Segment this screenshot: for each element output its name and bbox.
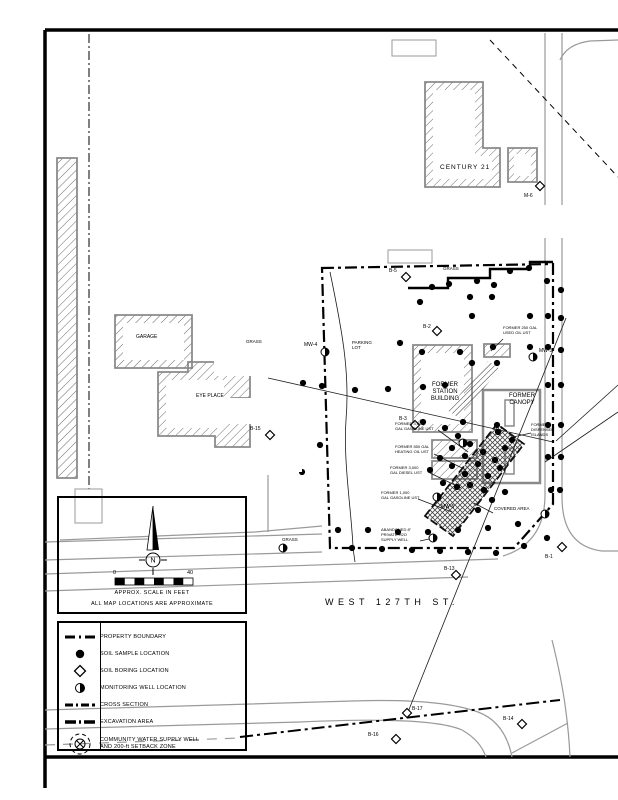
soil-sample-point bbox=[335, 527, 341, 533]
scale-tick-0: 0 bbox=[113, 570, 116, 576]
soil-sample-point bbox=[440, 480, 446, 486]
soil-sample-point bbox=[417, 299, 423, 305]
soil-sample-point bbox=[491, 282, 497, 288]
soil-sample-point bbox=[365, 527, 371, 533]
point-label: MW-4 bbox=[304, 342, 317, 348]
soil-sample-point bbox=[469, 360, 475, 366]
leader-abandoned-well bbox=[420, 539, 429, 541]
eyeplace-inner bbox=[166, 380, 224, 428]
soil-sample-point bbox=[467, 482, 473, 488]
monitoring-well-icon bbox=[59, 682, 100, 694]
soil-sample-point bbox=[509, 437, 515, 443]
point-label: B-17 bbox=[412, 706, 423, 712]
legend-panel: PROPERTY BOUNDARY SOIL SAMPLE LOCATION S… bbox=[57, 621, 247, 751]
soil-sample-point bbox=[299, 469, 305, 475]
soil-sample-point bbox=[454, 484, 460, 490]
offsite-leader-1 bbox=[556, 385, 618, 441]
legend-row-monitoring-well: MONITORING WELL LOCATION bbox=[59, 680, 245, 696]
point-label: B-2 bbox=[423, 324, 431, 330]
soil-sample-point bbox=[558, 287, 564, 293]
property-boundary-icon bbox=[59, 633, 100, 641]
soil-sample-point bbox=[521, 543, 527, 549]
left-strip-building bbox=[57, 158, 77, 478]
soil-sample-point bbox=[420, 419, 426, 425]
soil-sample-point bbox=[437, 548, 443, 554]
soil-sample-point bbox=[558, 347, 564, 353]
soil-sample-point bbox=[544, 278, 550, 284]
soil-sample-point bbox=[558, 422, 564, 428]
soil-boring-point bbox=[518, 720, 527, 729]
point-label: B-16 bbox=[368, 732, 379, 738]
dispenser-island-1 bbox=[505, 400, 514, 426]
soil-sample-point bbox=[317, 442, 323, 448]
soil-sample-point bbox=[526, 265, 532, 271]
soil-sample-point bbox=[465, 549, 471, 555]
soil-sample-point bbox=[467, 294, 473, 300]
soil-sample-point bbox=[462, 453, 468, 459]
century21-annex-inner bbox=[514, 154, 531, 176]
soil-sample-point bbox=[455, 527, 461, 533]
utility-box-1 bbox=[392, 40, 436, 56]
soil-sample-point bbox=[300, 380, 306, 386]
road-ne-corner bbox=[560, 40, 618, 60]
soil-boring-point bbox=[433, 327, 442, 336]
offsite-leader-2 bbox=[545, 412, 618, 462]
soil-sample-point bbox=[352, 387, 358, 393]
soil-sample-point bbox=[397, 340, 403, 346]
soil-sample-point bbox=[469, 313, 475, 319]
soil-sample-point bbox=[475, 461, 481, 467]
soil-sample-point bbox=[455, 433, 461, 439]
utility-box-2 bbox=[388, 250, 432, 263]
soil-sample-point bbox=[545, 313, 551, 319]
soil-sample-point bbox=[442, 382, 448, 388]
soil-sample-point bbox=[480, 449, 486, 455]
excavation-area-icon bbox=[59, 718, 100, 726]
scale-caption: APPROX. SCALE IN FEET bbox=[59, 590, 245, 596]
soil-sample-icon bbox=[59, 648, 100, 660]
soil-sample-point bbox=[437, 455, 443, 461]
soil-sample-point bbox=[462, 471, 468, 477]
point-label: B-5 bbox=[389, 268, 397, 274]
scale-bar bbox=[115, 578, 193, 585]
point-label: B-15 bbox=[250, 426, 261, 432]
soil-sample-point bbox=[544, 535, 550, 541]
soil-sample-point bbox=[527, 313, 533, 319]
scale-panel: N 0 40 APPROX. SCALE IN FEET ALL MAP LOC… bbox=[57, 496, 247, 614]
tank-basin-3 bbox=[484, 344, 510, 357]
point-label: B-1 bbox=[545, 554, 553, 560]
soil-boring-point bbox=[392, 735, 401, 744]
soil-sample-point bbox=[474, 278, 480, 284]
soil-sample-point bbox=[457, 349, 463, 355]
soil-boring-point bbox=[266, 431, 275, 440]
soil-sample-point bbox=[527, 344, 533, 350]
soil-sample-point bbox=[492, 457, 498, 463]
road-vert-east-curb bbox=[562, 33, 618, 551]
soil-sample-point bbox=[502, 445, 508, 451]
soil-sample-point bbox=[485, 473, 491, 479]
legend-row-soil-boring: SOIL BORING LOCATION bbox=[59, 663, 245, 679]
soil-sample-point bbox=[495, 429, 501, 435]
soil-sample-point bbox=[494, 422, 500, 428]
scale-tick-40: 40 bbox=[187, 570, 193, 576]
site-plan-page: B-5M-6B-15B-13B-17B-16B-14MW-4MW-3MW-5B-… bbox=[0, 0, 618, 800]
soil-sample-point bbox=[409, 547, 415, 553]
legend-row-excavation-area: EXCAVATION AREA bbox=[59, 714, 245, 730]
soil-sample-point bbox=[548, 487, 554, 493]
soil-sample-point bbox=[319, 383, 325, 389]
point-label: B-3 bbox=[399, 416, 407, 422]
soil-sample-point bbox=[379, 546, 385, 552]
legend-row-cross-section: CROSS SECTION bbox=[59, 697, 245, 713]
cross-section-icon bbox=[59, 701, 100, 709]
soil-sample-point bbox=[429, 284, 435, 290]
soil-sample-point bbox=[475, 507, 481, 513]
soil-sample-point bbox=[507, 268, 513, 274]
community-well-icon bbox=[59, 732, 100, 756]
soil-sample-point bbox=[442, 425, 448, 431]
point-label: B-13 bbox=[444, 566, 455, 572]
soil-sample-point bbox=[427, 467, 433, 473]
soil-sample-point bbox=[489, 497, 495, 503]
soil-sample-point bbox=[349, 545, 355, 551]
soil-sample-point bbox=[449, 445, 455, 451]
soil-sample-point bbox=[493, 550, 499, 556]
soil-sample-point bbox=[481, 487, 487, 493]
soil-sample-point bbox=[420, 384, 426, 390]
soil-sample-point bbox=[385, 386, 391, 392]
soil-sample-point bbox=[558, 454, 564, 460]
soil-sample-point bbox=[395, 529, 401, 535]
soil-sample-point bbox=[425, 529, 431, 535]
soil-sample-point bbox=[485, 525, 491, 531]
soil-sample-point bbox=[449, 463, 455, 469]
soil-sample-point bbox=[489, 294, 495, 300]
soil-sample-point bbox=[490, 344, 496, 350]
point-label: MW-5 bbox=[441, 504, 454, 510]
road-side-south bbox=[552, 640, 570, 757]
legend-row-soil-sample: SOIL SAMPLE LOCATION bbox=[59, 646, 245, 662]
soil-sample-point bbox=[545, 422, 551, 428]
point-label: B-14 bbox=[503, 716, 514, 722]
soil-sample-point bbox=[545, 382, 551, 388]
garage-inner bbox=[123, 323, 184, 360]
legend-row-property-boundary: PROPERTY BOUNDARY bbox=[59, 629, 245, 645]
soil-sample-point bbox=[515, 521, 521, 527]
point-label: M-6 bbox=[524, 193, 533, 199]
compass-n-letter: N bbox=[150, 558, 155, 565]
soil-sample-point bbox=[558, 315, 564, 321]
soil-boring-point bbox=[402, 273, 411, 282]
soil-boring-point bbox=[558, 543, 567, 552]
scale-note: ALL MAP LOCATIONS ARE APPROXIMATE bbox=[59, 601, 245, 607]
soil-boring-icon bbox=[59, 664, 100, 678]
soil-sample-point bbox=[557, 487, 563, 493]
point-label: MW-3 bbox=[539, 348, 552, 354]
soil-sample-point bbox=[545, 454, 551, 460]
legend-row-community-well: COMMUNITY WATER SUPPLY WELL AND 200-ft S… bbox=[59, 731, 245, 757]
west-curb-curve bbox=[330, 272, 355, 562]
soil-sample-point bbox=[558, 382, 564, 388]
soil-sample-point bbox=[446, 281, 452, 287]
soil-sample-point bbox=[497, 465, 503, 471]
soil-sample-point bbox=[502, 489, 508, 495]
soil-sample-point bbox=[494, 360, 500, 366]
soil-sample-point bbox=[419, 349, 425, 355]
road-vert-west-curb bbox=[503, 33, 545, 556]
soil-boring-point bbox=[403, 709, 412, 718]
soil-sample-point bbox=[460, 419, 466, 425]
soil-sample-point bbox=[467, 441, 473, 447]
